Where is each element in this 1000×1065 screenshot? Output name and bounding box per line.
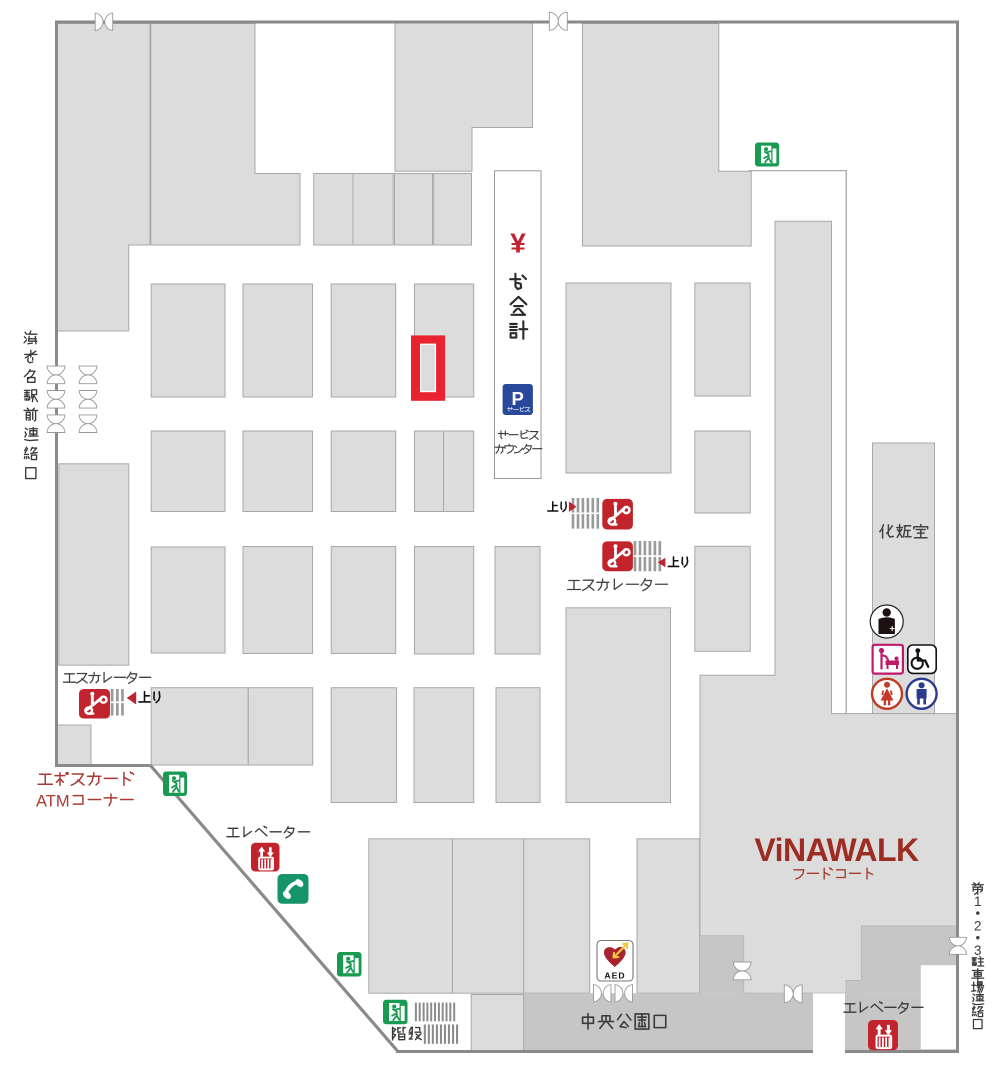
svg-text:AED: AED (604, 971, 625, 981)
svg-text:ATM: ATM (36, 793, 70, 811)
svg-text:ViNAWALK: ViNAWALK (754, 832, 919, 868)
svg-text:P: P (512, 388, 524, 409)
svg-text:3: 3 (974, 943, 982, 958)
svg-text:¥: ¥ (510, 228, 526, 259)
svg-text:1: 1 (974, 894, 982, 909)
svg-text:2: 2 (974, 918, 982, 933)
